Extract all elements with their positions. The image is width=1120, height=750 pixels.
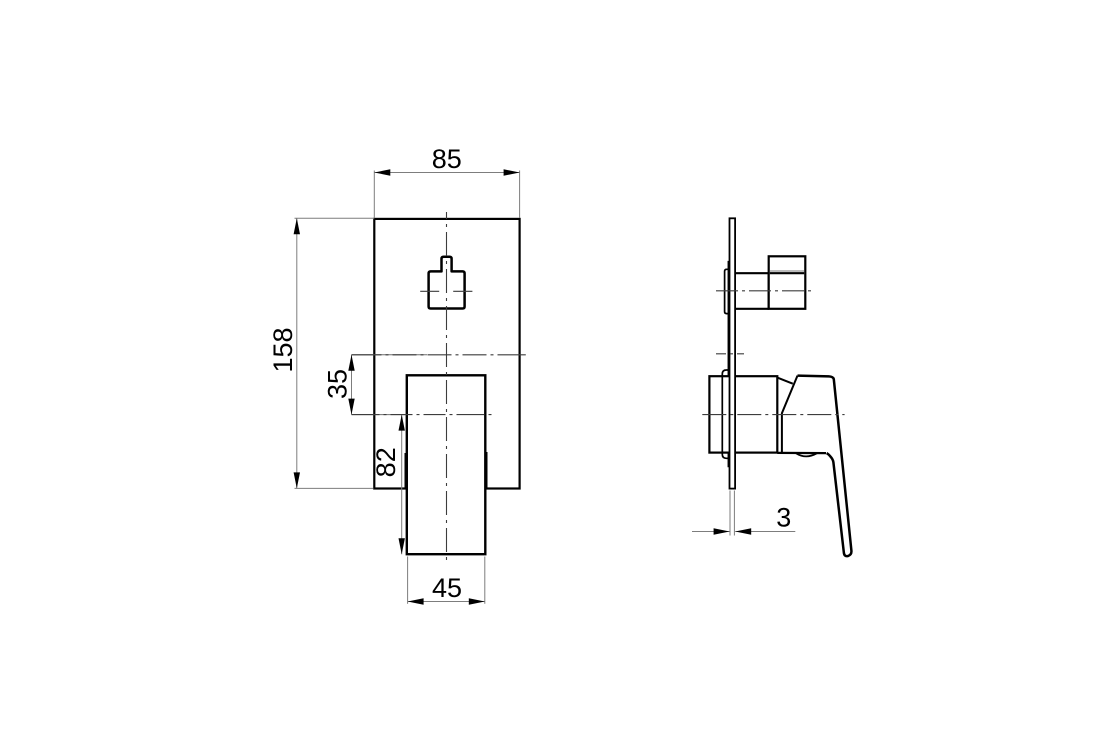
svg-text:3: 3 xyxy=(776,503,791,533)
svg-text:45: 45 xyxy=(432,573,462,603)
svg-text:35: 35 xyxy=(323,369,353,399)
svg-text:158: 158 xyxy=(268,327,298,372)
svg-text:82: 82 xyxy=(371,447,401,477)
svg-text:85: 85 xyxy=(432,144,462,174)
